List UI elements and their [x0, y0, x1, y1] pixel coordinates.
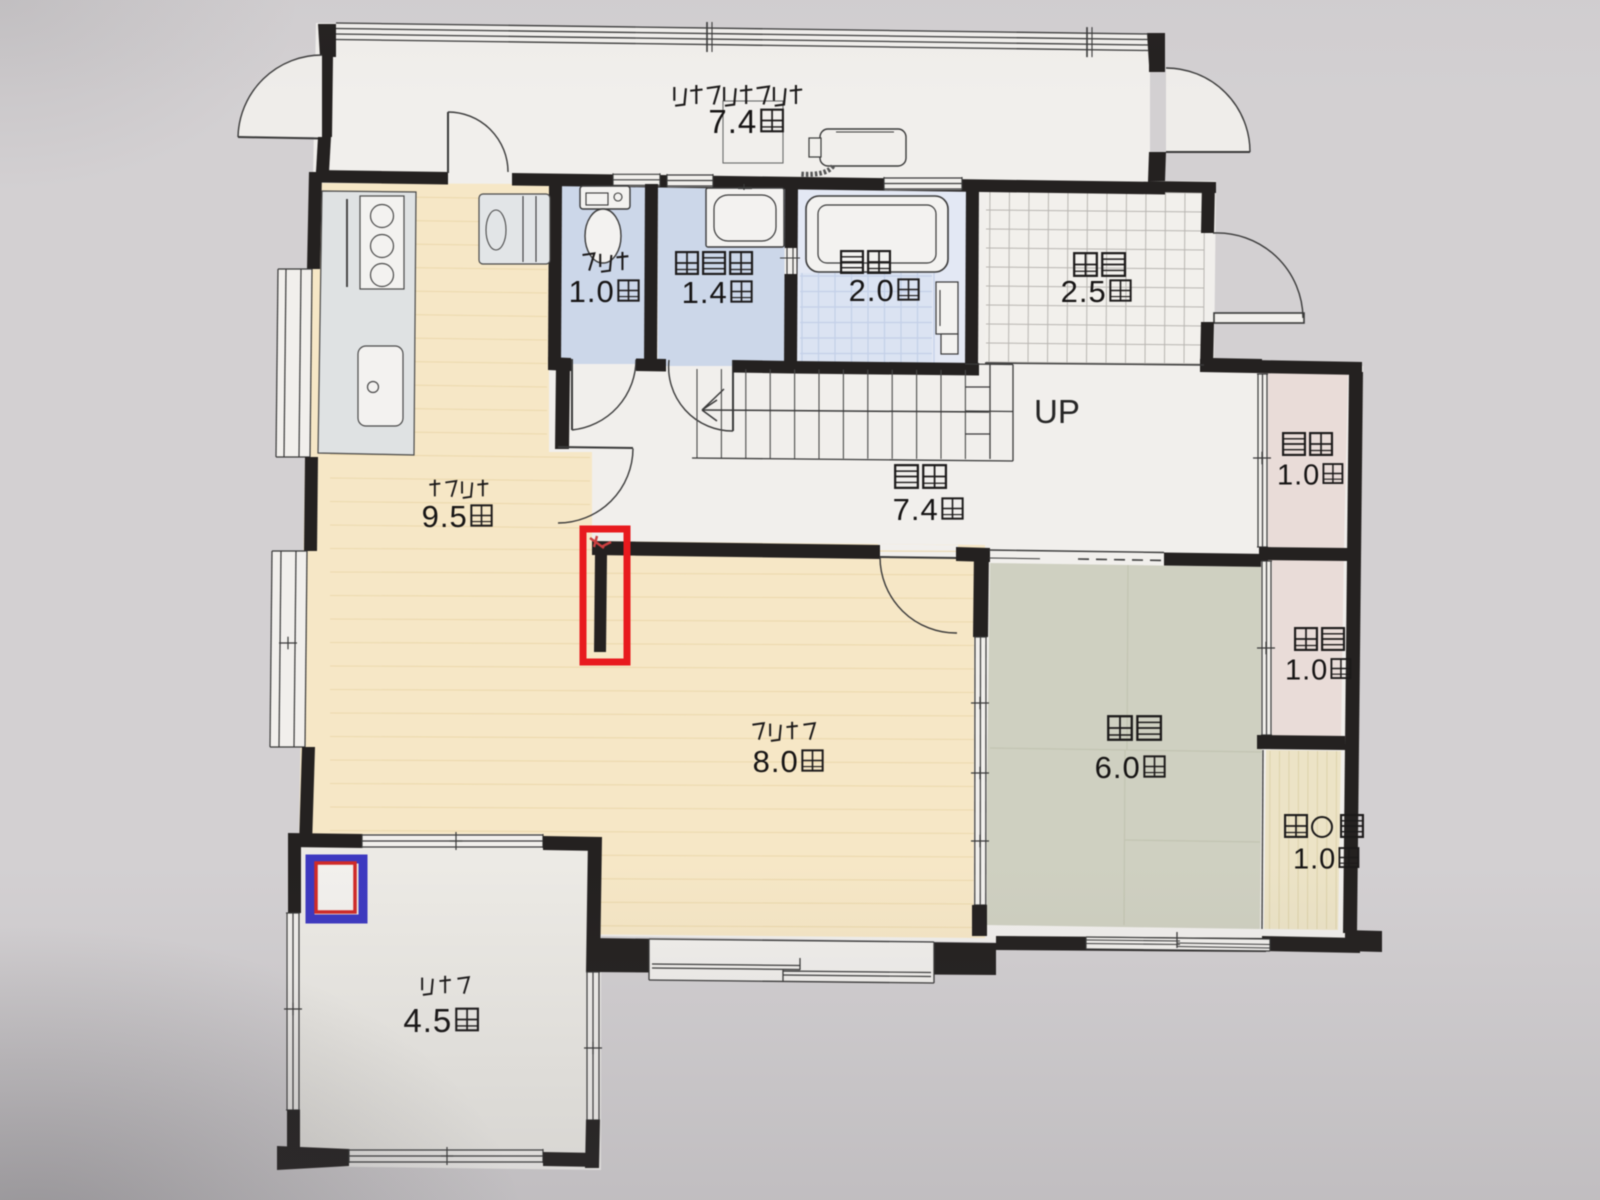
svg-text:7.4: 7.4	[893, 492, 939, 527]
svg-text:2.5: 2.5	[1061, 274, 1107, 309]
svg-text:7.4: 7.4	[708, 103, 757, 140]
svg-text:1.0: 1.0	[569, 274, 615, 309]
svg-text:1.4: 1.4	[682, 275, 728, 310]
svg-text:8.0: 8.0	[753, 744, 799, 779]
svg-text:UP: UP	[1034, 393, 1080, 430]
svg-text:1.0: 1.0	[1285, 654, 1328, 686]
svg-text:2.0: 2.0	[849, 273, 895, 308]
svg-text:4.5: 4.5	[403, 1002, 452, 1039]
svg-text:6.0: 6.0	[1095, 750, 1141, 785]
svg-text:9.5: 9.5	[422, 499, 468, 534]
svg-text:1.0: 1.0	[1277, 459, 1320, 491]
svg-text:1.0: 1.0	[1293, 843, 1336, 875]
